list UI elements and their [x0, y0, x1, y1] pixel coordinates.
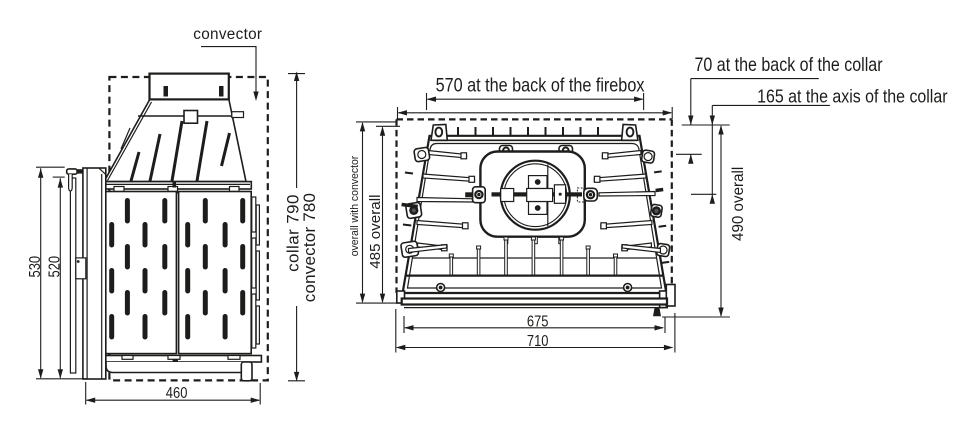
svg-text:convector: convector: [193, 26, 262, 43]
svg-text:520: 520: [46, 256, 63, 278]
svg-text:overall with convector: overall with convector: [349, 155, 361, 256]
svg-text:490 overall: 490 overall: [730, 167, 747, 241]
svg-text:485 overall: 485 overall: [367, 194, 384, 268]
svg-text:530: 530: [27, 256, 44, 278]
svg-text:710: 710: [527, 333, 549, 350]
svg-text:70 at the back of the collar: 70 at the back of the collar: [695, 54, 883, 76]
svg-text:convector 780: convector 780: [300, 193, 319, 302]
svg-text:460: 460: [166, 385, 188, 402]
svg-text:570 at the back of the firebox: 570 at the back of the firebox: [436, 74, 645, 96]
svg-text:675: 675: [527, 313, 549, 330]
svg-text:165 at the axis of the collar: 165 at the axis of the collar: [757, 85, 948, 106]
